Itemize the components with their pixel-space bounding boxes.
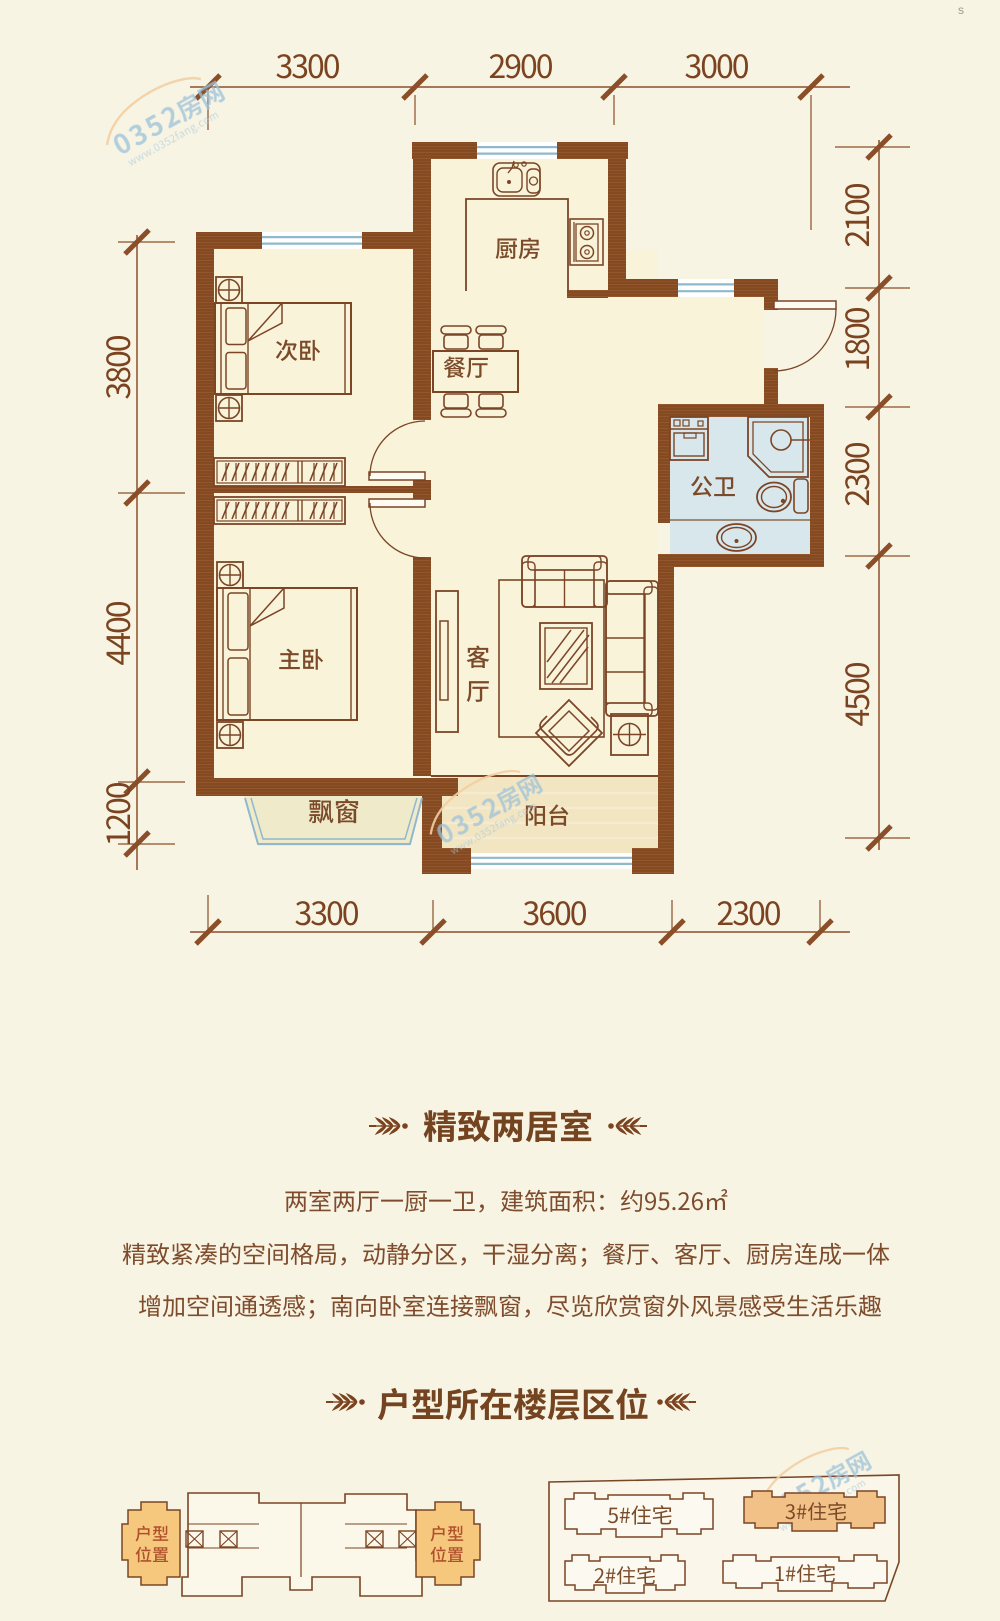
svg-text:s: s — [958, 3, 964, 17]
